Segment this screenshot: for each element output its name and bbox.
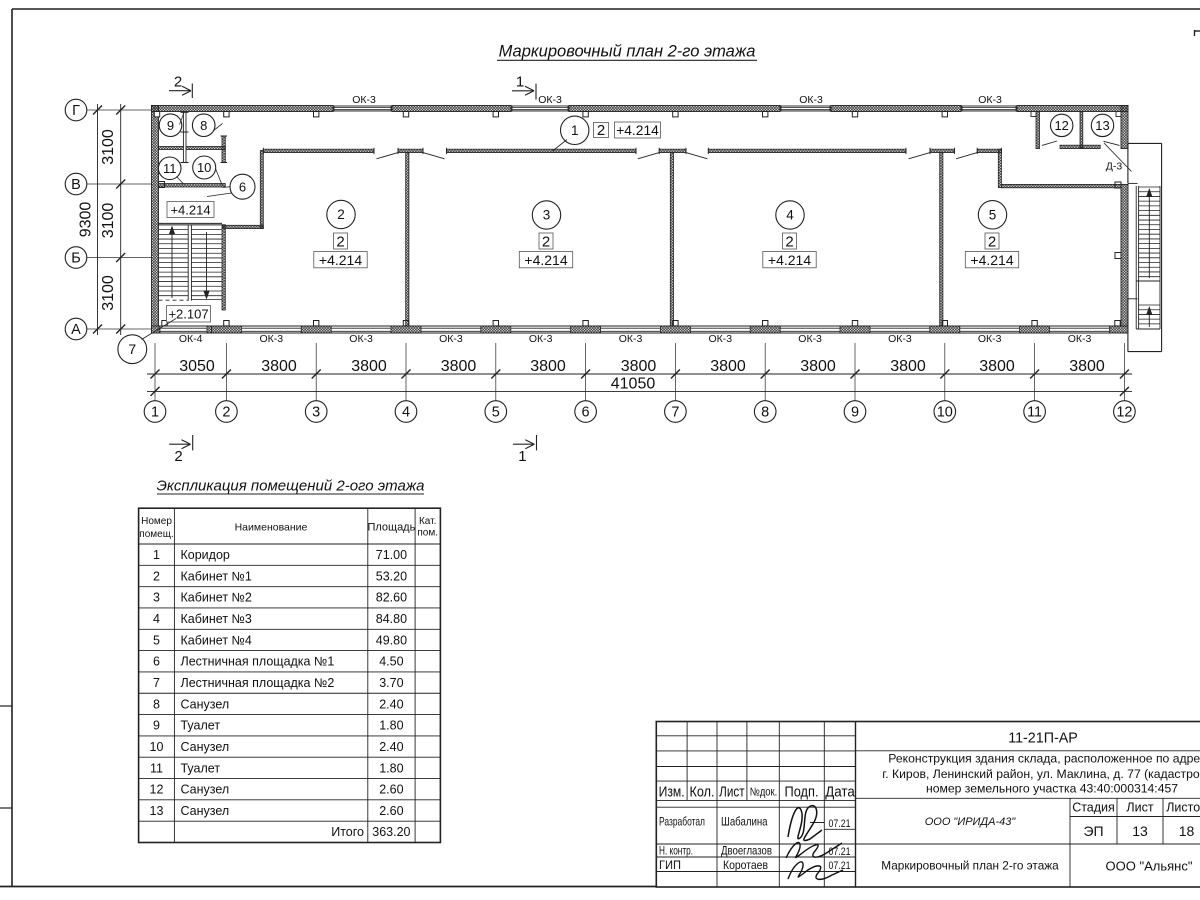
svg-text:2: 2: [174, 448, 182, 465]
svg-text:10: 10: [197, 160, 211, 175]
svg-text:11: 11: [163, 161, 177, 176]
svg-text:9300: 9300: [78, 202, 95, 238]
svg-text:Н. контр.: Н. контр.: [659, 844, 693, 858]
svg-text:ОК-4: ОК-4: [179, 333, 203, 345]
svg-text:Санузел: Санузел: [181, 804, 230, 818]
svg-text:3100: 3100: [100, 129, 117, 165]
svg-text:7: 7: [671, 405, 679, 421]
svg-text:18: 18: [1179, 823, 1195, 839]
svg-text:3: 3: [153, 591, 160, 605]
svg-text:8: 8: [153, 697, 160, 711]
svg-text:3800: 3800: [1069, 358, 1105, 375]
svg-text:2: 2: [153, 569, 160, 583]
svg-text:2: 2: [785, 233, 793, 250]
svg-text:13: 13: [1095, 118, 1109, 133]
svg-text:№док.: №док.: [750, 787, 778, 799]
svg-text:ОК-3: ОК-3: [708, 333, 732, 345]
svg-text:Реконструкция здания склада, р: Реконструкция здания склада, расположенн…: [888, 752, 1200, 766]
svg-text:Стадия: Стадия: [1072, 801, 1115, 815]
svg-text:ОК-3: ОК-3: [259, 333, 283, 345]
svg-text:Кабинет №4: Кабинет №4: [181, 633, 252, 647]
svg-text:ОК-3: ОК-3: [978, 94, 1002, 106]
svg-text:Листов: Листов: [1166, 801, 1200, 815]
svg-text:2: 2: [174, 74, 182, 91]
svg-text:6: 6: [582, 405, 590, 421]
svg-text:8: 8: [761, 405, 769, 421]
svg-text:Санузел: Санузел: [181, 697, 230, 711]
svg-text:Маркировочный план 2-го этажа: Маркировочный план 2-го этажа: [499, 43, 756, 61]
svg-text:Коротаев: Коротаев: [723, 858, 768, 872]
svg-text:2.40: 2.40: [379, 697, 403, 711]
svg-text:г. Киров, Ленинский район, ул.: г. Киров, Ленинский район, ул. Маклина, …: [882, 767, 1200, 781]
svg-text:5: 5: [492, 405, 500, 421]
svg-text:Кол.: Кол.: [690, 784, 715, 801]
svg-text:9: 9: [153, 719, 160, 733]
svg-text:Изм.: Изм.: [659, 784, 685, 801]
svg-text:ОК-3: ОК-3: [799, 94, 823, 106]
svg-text:Кат.: Кат.: [419, 516, 436, 527]
svg-text:Двоеглазов: Двоеглазов: [721, 844, 772, 858]
svg-text:3: 3: [543, 208, 551, 223]
svg-text:12: 12: [150, 783, 164, 797]
svg-text:1: 1: [151, 405, 159, 421]
svg-text:4: 4: [153, 612, 160, 626]
svg-text:Дата: Дата: [825, 784, 855, 801]
svg-text:ГИП: ГИП: [659, 858, 681, 872]
svg-text:3800: 3800: [979, 358, 1015, 375]
svg-text:Туалет: Туалет: [181, 719, 221, 733]
svg-text:номер земельного участка 43:40: номер земельного участка 43:40:000314:45…: [926, 782, 1178, 796]
svg-text:+4.214: +4.214: [616, 123, 659, 138]
svg-text:3800: 3800: [261, 358, 297, 375]
svg-text:Итого: Итого: [331, 825, 364, 839]
svg-text:Лестничная площадка №2: Лестничная площадка №2: [181, 676, 335, 690]
svg-text:ОК-3: ОК-3: [888, 333, 912, 345]
svg-text:Шабалина: Шабалина: [721, 815, 768, 829]
svg-text:6: 6: [239, 179, 246, 194]
svg-text:1: 1: [516, 73, 524, 90]
svg-text:71.00: 71.00: [376, 548, 407, 562]
svg-text:2: 2: [336, 233, 344, 250]
svg-text:+4.214: +4.214: [970, 252, 1013, 268]
svg-text:5: 5: [989, 208, 997, 223]
svg-text:2: 2: [542, 233, 550, 250]
svg-text:Разработал: Разработал: [659, 815, 705, 829]
svg-text:Подп.: Подп.: [785, 784, 819, 801]
svg-text:помещ.: помещ.: [139, 529, 173, 540]
svg-text:ОК-3: ОК-3: [538, 94, 562, 106]
svg-text:2: 2: [988, 233, 996, 250]
svg-text:Д-3: Д-3: [1106, 161, 1123, 173]
svg-text:3100: 3100: [100, 203, 117, 239]
svg-text:3800: 3800: [800, 358, 836, 375]
svg-text:ОК-3: ОК-3: [619, 333, 643, 345]
svg-text:3800: 3800: [351, 358, 387, 375]
svg-text:Наименование: Наименование: [235, 522, 308, 534]
svg-text:Кабинет №1: Кабинет №1: [181, 569, 252, 583]
svg-text:Маркировочный план 2-го этажа: Маркировочный план 2-го этажа: [881, 859, 1059, 873]
svg-text:7: 7: [153, 676, 160, 690]
svg-text:6: 6: [153, 655, 160, 669]
svg-text:49.80: 49.80: [376, 633, 407, 647]
svg-text:13: 13: [1132, 823, 1148, 839]
svg-text:10: 10: [150, 740, 164, 754]
svg-text:+4.214: +4.214: [768, 252, 811, 268]
svg-text:7: 7: [128, 341, 136, 357]
svg-text:3800: 3800: [890, 358, 926, 375]
svg-text:1: 1: [571, 123, 579, 138]
svg-text:Туалет: Туалет: [181, 761, 221, 775]
svg-text:4: 4: [402, 405, 410, 421]
svg-text:3: 3: [312, 405, 320, 421]
svg-text:3800: 3800: [441, 358, 477, 375]
svg-text:ОК-3: ОК-3: [798, 333, 822, 345]
svg-text:3800: 3800: [621, 358, 657, 375]
svg-text:5: 5: [153, 633, 160, 647]
svg-text:ЭП: ЭП: [1083, 823, 1103, 839]
svg-text:+4.214: +4.214: [524, 252, 567, 268]
svg-text:ОК-3: ОК-3: [978, 333, 1002, 345]
svg-text:3800: 3800: [530, 358, 566, 375]
svg-text:41050: 41050: [611, 376, 656, 393]
svg-text:1: 1: [153, 548, 160, 562]
svg-text:+4.214: +4.214: [319, 252, 362, 268]
svg-text:84.80: 84.80: [376, 612, 407, 626]
svg-text:Санузел: Санузел: [181, 783, 230, 797]
svg-text:Б: Б: [71, 251, 81, 267]
svg-text:А: А: [71, 322, 81, 338]
svg-text:9: 9: [167, 118, 174, 133]
svg-text:363.20: 363.20: [372, 825, 410, 839]
svg-text:12: 12: [1116, 405, 1132, 421]
svg-text:Лист: Лист: [1126, 801, 1153, 815]
svg-text:2.60: 2.60: [379, 804, 403, 818]
svg-text:82.60: 82.60: [376, 591, 407, 605]
svg-text:2.40: 2.40: [379, 740, 403, 754]
svg-text:07.21: 07.21: [829, 846, 851, 858]
svg-text:12: 12: [1054, 118, 1068, 133]
svg-text:1.80: 1.80: [379, 761, 403, 775]
svg-text:Г: Г: [72, 103, 80, 119]
svg-text:Кабинет №3: Кабинет №3: [181, 612, 252, 626]
svg-text:ОК-3: ОК-3: [439, 333, 463, 345]
svg-text:53.20: 53.20: [376, 569, 407, 583]
svg-text:1: 1: [518, 448, 526, 465]
svg-text:Санузел: Санузел: [181, 740, 230, 754]
svg-text:13: 13: [150, 804, 164, 818]
svg-text:В: В: [71, 177, 81, 193]
svg-text:Кабинет №2: Кабинет №2: [181, 591, 252, 605]
svg-text:Коридор: Коридор: [181, 548, 230, 562]
svg-text:10: 10: [937, 405, 953, 421]
svg-text:2: 2: [337, 207, 345, 222]
svg-text:Лестничная площадка №1: Лестничная площадка №1: [181, 655, 335, 669]
svg-text:ООО "Альянс": ООО "Альянс": [1106, 858, 1193, 873]
svg-text:4.50: 4.50: [379, 655, 403, 669]
svg-text:2.60: 2.60: [379, 783, 403, 797]
svg-text:4: 4: [786, 208, 794, 223]
svg-text:9: 9: [851, 405, 859, 421]
svg-text:07.21: 07.21: [829, 818, 851, 830]
svg-text:Экспликация помещений 2-ого эт: Экспликация помещений 2-ого этажа: [157, 478, 425, 495]
svg-text:2: 2: [222, 405, 230, 421]
svg-text:8: 8: [200, 118, 207, 133]
svg-text:Площадь: Площадь: [367, 522, 415, 534]
svg-text:1.80: 1.80: [379, 719, 403, 733]
svg-text:ОК-3: ОК-3: [349, 333, 373, 345]
svg-text:ООО "ИРИДА-43": ООО "ИРИДА-43": [925, 816, 1017, 828]
svg-text:ОК-3: ОК-3: [1068, 333, 1092, 345]
svg-text:11: 11: [150, 761, 163, 775]
svg-text:Лист: Лист: [719, 784, 745, 801]
svg-text:11: 11: [1027, 405, 1042, 421]
svg-text:11-21П-АР: 11-21П-АР: [1008, 731, 1078, 747]
svg-text:+4.214: +4.214: [170, 202, 210, 217]
svg-text:Номер: Номер: [141, 516, 172, 527]
svg-text:3050: 3050: [179, 358, 215, 375]
svg-text:3100: 3100: [100, 275, 117, 311]
svg-text:ОК-3: ОК-3: [352, 94, 376, 106]
svg-text:3800: 3800: [710, 358, 746, 375]
svg-text:2: 2: [597, 122, 605, 139]
svg-text:07.21: 07.21: [829, 860, 851, 872]
svg-text:пом.: пом.: [417, 528, 438, 539]
svg-text:3.70: 3.70: [379, 676, 403, 690]
svg-text:ОК-3: ОК-3: [529, 333, 553, 345]
